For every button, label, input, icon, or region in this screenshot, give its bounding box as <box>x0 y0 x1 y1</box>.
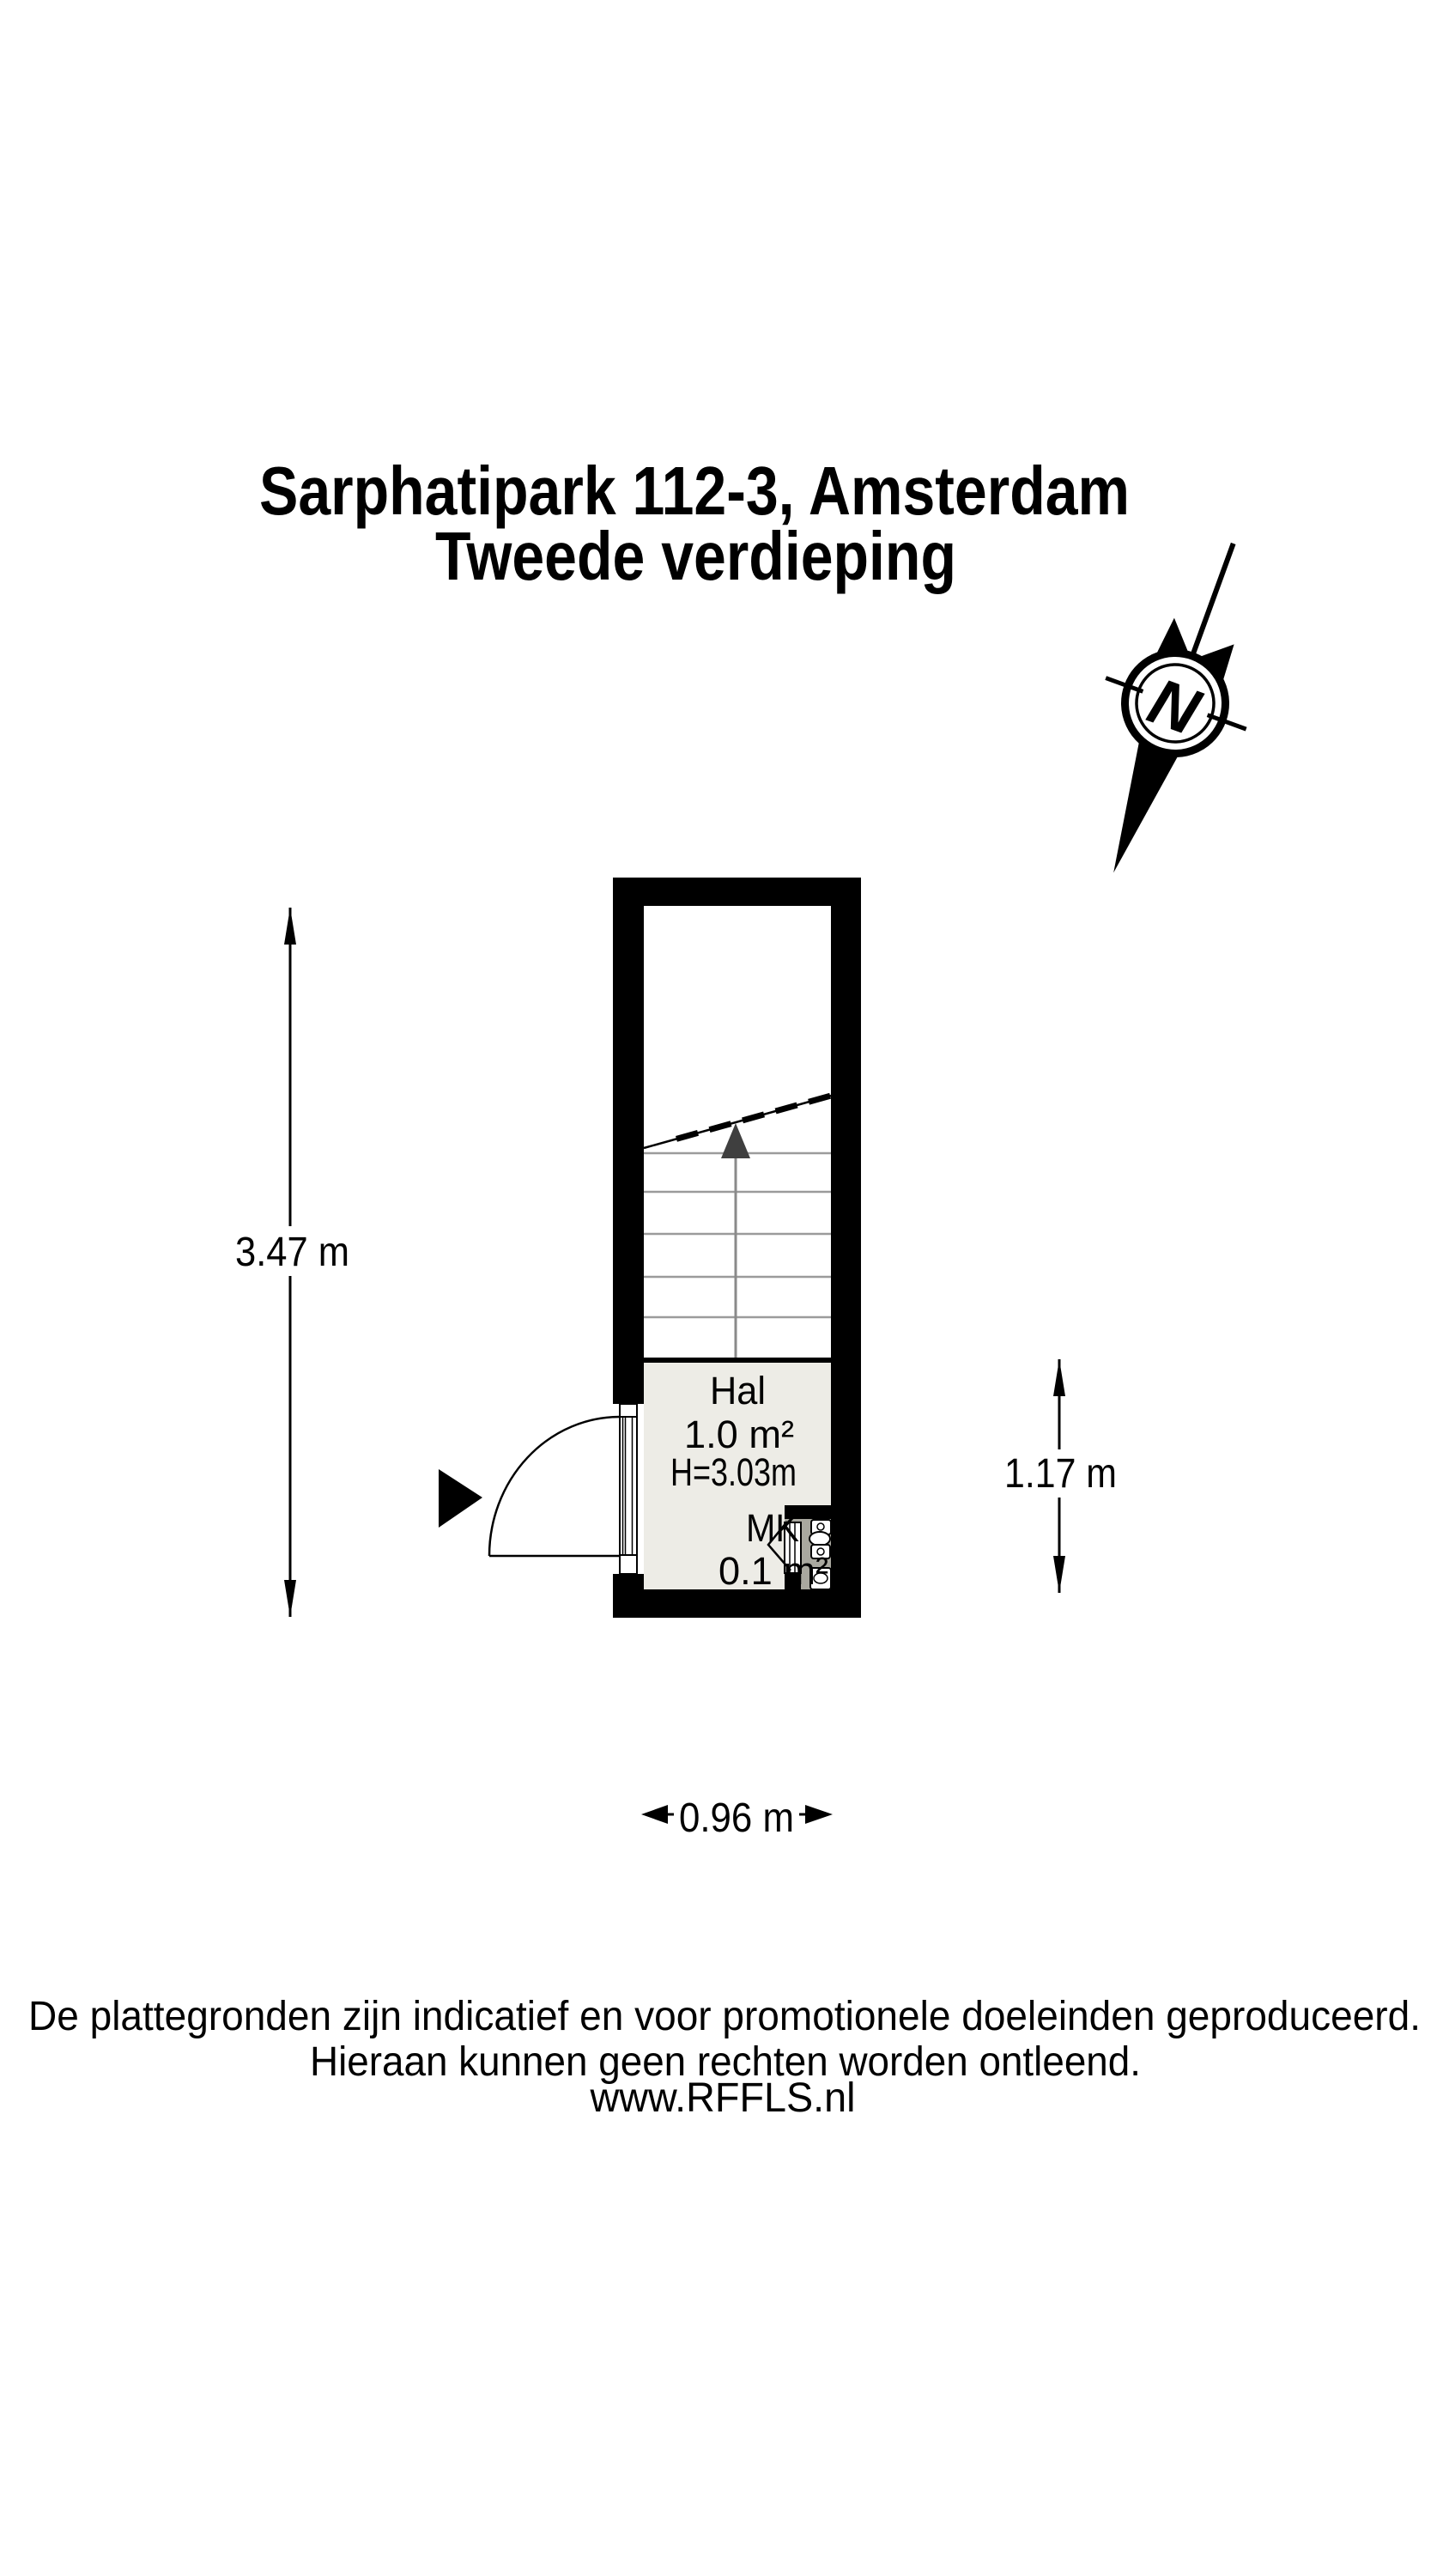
svg-text:Hal: Hal <box>710 1369 766 1413</box>
svg-text:MK: MK <box>746 1506 799 1550</box>
svg-text:1.17 m: 1.17 m <box>1004 1451 1117 1497</box>
svg-text:0.96 m: 0.96 m <box>679 1795 794 1841</box>
svg-text:H=3.03m: H=3.03m <box>670 1450 797 1494</box>
svg-text:3.47 m: 3.47 m <box>235 1230 349 1275</box>
svg-text:De plattegronden zijn indicati: De plattegronden zijn indicatief en voor… <box>28 1994 1421 2039</box>
svg-text:www.RFFLS.nl: www.RFFLS.nl <box>590 2075 856 2121</box>
svg-text:0.1 m²: 0.1 m² <box>718 1549 828 1593</box>
svg-text:Tweede verdieping: Tweede verdieping <box>435 518 956 594</box>
